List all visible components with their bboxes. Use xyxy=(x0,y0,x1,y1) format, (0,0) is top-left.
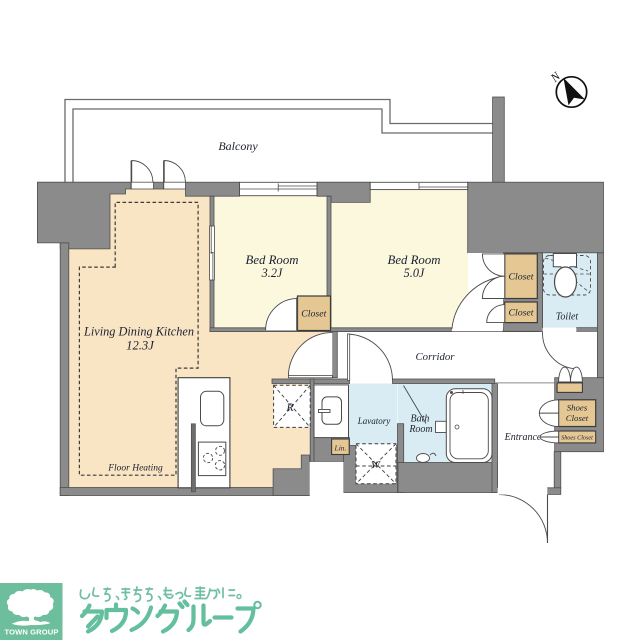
svg-text:5.0J: 5.0J xyxy=(404,266,425,280)
svg-text:Balcony: Balcony xyxy=(218,139,258,153)
svg-text:Closet: Closet xyxy=(508,272,533,283)
svg-text:Entrance: Entrance xyxy=(504,432,542,443)
svg-text:Corridor: Corridor xyxy=(415,351,455,363)
svg-text:Bed Room: Bed Room xyxy=(388,253,441,267)
svg-text:Closet: Closet xyxy=(301,309,326,320)
svg-text:Closet: Closet xyxy=(566,413,589,423)
svg-text:Bed Room: Bed Room xyxy=(246,253,299,267)
svg-text:Lin.: Lin. xyxy=(334,444,347,453)
svg-text:Living Dining Kitchen: Living Dining Kitchen xyxy=(83,325,194,339)
svg-text:Lavatory: Lavatory xyxy=(357,416,391,426)
svg-text:TOWN GROUP: TOWN GROUP xyxy=(4,628,58,637)
svg-text:Room: Room xyxy=(408,424,432,435)
svg-text:Shoes: Shoes xyxy=(567,403,588,413)
svg-text:Bath: Bath xyxy=(411,414,430,425)
svg-text:Floor Heating: Floor Heating xyxy=(107,464,163,474)
svg-text:R: R xyxy=(285,400,294,414)
svg-text:Closet: Closet xyxy=(508,308,533,319)
svg-text:W: W xyxy=(371,459,381,471)
svg-text:3.2J: 3.2J xyxy=(261,266,283,280)
svg-text:12.3J: 12.3J xyxy=(126,339,155,353)
svg-text:Toilet: Toilet xyxy=(556,312,579,323)
svg-text:Shoes Closet: Shoes Closet xyxy=(561,435,593,442)
